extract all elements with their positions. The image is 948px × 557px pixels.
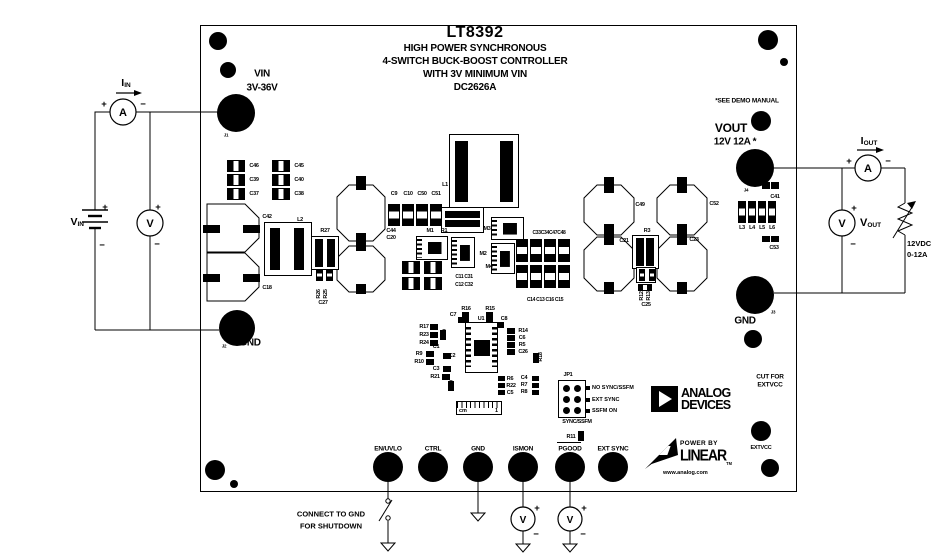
title-line: 4-SWITCH BUCK-BOOST CONTROLLER — [330, 55, 620, 68]
component-shape — [516, 239, 528, 262]
component-shape — [451, 237, 475, 268]
ammeter-letter: A — [119, 107, 127, 119]
silkscreen-c18: C18 — [262, 285, 271, 291]
voltmeter-letter: V — [567, 515, 574, 526]
load-rating-line2: 0-12A — [907, 250, 927, 259]
silkscreen-r16: R16 — [461, 306, 470, 312]
shutdown-switch — [386, 499, 390, 520]
vout-label: VOUT — [715, 121, 747, 135]
silkscreen-m2: M2 — [479, 251, 486, 257]
analog-url: www.analog.com — [663, 470, 708, 476]
cut-for-extvcc-note: CUT FOR — [756, 374, 784, 381]
component-shape — [445, 211, 480, 218]
component-shape — [639, 269, 645, 281]
component-shape — [416, 204, 428, 226]
component-shape — [578, 431, 584, 441]
turret-label-ctrl: CTRL — [425, 446, 442, 453]
component-shape — [738, 201, 746, 223]
jp1-option-marker — [586, 386, 590, 390]
component-shape — [498, 376, 505, 381]
component-shape — [677, 177, 687, 193]
turret-label-ismon: ISMON — [513, 446, 533, 453]
silkscreen-r15: R15 — [485, 306, 494, 312]
component-shape — [316, 269, 323, 281]
minus-sign: − — [140, 99, 146, 110]
silkscreen-c33c34c47c48: C33C34C47C48 — [532, 230, 565, 236]
cut-for-extvcc-note: EXTVCC — [757, 382, 782, 389]
analog-devices-logo-icon — [651, 386, 678, 412]
turret-gnd[interactable] — [463, 452, 493, 482]
component-shape — [507, 328, 515, 334]
silkscreen-j4: J4 — [744, 188, 748, 193]
scale-ruler: cm 1 — [456, 401, 502, 415]
silkscreen-c40: C40 — [294, 177, 303, 183]
plus-sign: + — [846, 156, 852, 167]
component-shape — [532, 376, 539, 381]
turret-label-gnd: GND — [471, 446, 485, 453]
component-shape — [646, 238, 654, 266]
component-shape — [416, 236, 448, 260]
component-shape — [203, 274, 220, 282]
component-shape — [771, 236, 779, 242]
jp1-option: SSFM ON — [592, 408, 617, 414]
silkscreen-c37: C37 — [249, 191, 258, 197]
silkscreen-c41: C41 — [770, 194, 779, 200]
mounting-hole — [744, 330, 762, 348]
silkscreen-r7: R7 — [521, 382, 527, 388]
output-voltmeter — [829, 210, 855, 236]
part-number: LT8392 — [330, 24, 620, 42]
silkscreen-m1: M1 — [426, 228, 433, 234]
load-arrow-head — [907, 201, 916, 209]
iout-arrow-head — [876, 147, 884, 153]
component-shape — [227, 160, 245, 172]
silkscreen-c6: C6 — [519, 335, 525, 341]
iin-arrow-head — [134, 90, 142, 96]
minus-sign: − — [154, 239, 160, 250]
silkscreen-r19: R19 — [449, 380, 455, 389]
silkscreen-c26: C26 — [518, 349, 527, 355]
component-shape — [762, 236, 770, 242]
silkscreen-c1: C1 — [433, 344, 439, 350]
component-shape — [507, 342, 515, 348]
component-shape — [532, 390, 539, 395]
linear-logo-text: LINEARTM — [680, 446, 732, 466]
silkscreen-l4: L4 — [749, 225, 755, 231]
silkscreen-r10: R10 — [414, 359, 423, 365]
silkscreen-c50: C50 — [417, 191, 426, 197]
silkscreen-r24: R24 — [419, 340, 428, 346]
mounting-hole — [761, 459, 779, 477]
jp1-label: JP1 — [564, 372, 573, 378]
voltmeter-letter: V — [520, 515, 527, 526]
silkscreen-c11-c31: C11 C31 — [455, 274, 472, 280]
component-shape — [455, 141, 468, 202]
minus-sign: − — [533, 529, 539, 540]
silkscreen-r26: R26 — [316, 289, 322, 298]
silkscreen-u1: U1 — [478, 316, 484, 322]
turret-en-uvlo[interactable] — [373, 452, 403, 482]
component-shape — [758, 201, 766, 223]
component-shape — [272, 174, 290, 186]
load-rating-line1: 12VDC — [907, 239, 931, 248]
component-shape — [402, 261, 420, 274]
component-shape — [677, 229, 687, 245]
silkscreen-c14-c13-c16-c15: C14 C13 C16 C15 — [527, 297, 563, 303]
component-shape — [677, 282, 687, 294]
silkscreen-c23: C23 — [689, 237, 698, 243]
component-shape — [498, 390, 505, 395]
turret-pgood[interactable] — [555, 452, 585, 482]
output-ammeter — [855, 155, 881, 181]
vout-rating: 12V 12A * — [714, 137, 757, 148]
silkscreen-r17: R17 — [419, 324, 428, 330]
silkscreen-r5: R5 — [519, 342, 525, 348]
plus-sign: + — [534, 503, 540, 514]
component-shape — [445, 220, 480, 227]
silkscreen-c46: C46 — [249, 163, 258, 169]
component-shape — [243, 225, 260, 233]
plus-sign: + — [581, 503, 587, 514]
iout-label: IOUT — [861, 135, 878, 147]
turret-ctrl[interactable] — [418, 452, 448, 482]
j3-gnd-pad[interactable] — [736, 276, 774, 314]
silkscreen-r1: R1 — [441, 228, 447, 234]
mounting-hole — [780, 58, 788, 66]
silkscreen-l2: L2 — [297, 217, 303, 223]
jp1-option: NO SYNC/SSFM — [592, 385, 634, 391]
silkscreen-c12-c32: C12 C32 — [455, 282, 473, 288]
battery-symbol — [82, 210, 108, 228]
plus-sign: + — [155, 202, 161, 213]
component-shape — [443, 366, 451, 372]
silkscreen-r8: R8 — [521, 389, 527, 395]
ammeter-letter: A — [864, 163, 872, 175]
component-shape — [636, 238, 644, 266]
mounting-hole — [758, 30, 778, 50]
extvcc-pad[interactable] — [751, 421, 771, 441]
component-shape — [227, 188, 245, 200]
jp1-option: EXT SYNC — [592, 397, 620, 403]
component-shape — [203, 225, 220, 233]
component-shape — [604, 229, 614, 245]
vout-meter-label: VOUT — [860, 217, 881, 229]
component-shape — [498, 383, 505, 388]
voltmeter-letter: V — [838, 218, 846, 230]
silkscreen-j3: J3 — [771, 310, 775, 315]
silkscreen-r25: R25 — [323, 289, 329, 298]
silkscreen-r20: R20 — [442, 329, 448, 338]
component-shape — [272, 188, 290, 200]
component-shape — [402, 277, 420, 290]
silkscreen-c38: C38 — [294, 191, 303, 197]
component-shape — [272, 160, 290, 172]
j2-gnd-pad[interactable] — [219, 310, 255, 346]
silkscreen-c44: C44 — [386, 228, 395, 234]
silkscreen-c53: C53 — [769, 245, 778, 251]
minus-sign: − — [99, 240, 105, 251]
component-shape — [430, 324, 438, 330]
jp1-caption: SYNC/SSFM — [562, 419, 591, 425]
ruler-unit: cm — [459, 408, 467, 414]
component-shape — [356, 233, 366, 251]
silkscreen-r6: R6 — [507, 376, 513, 382]
j1-vin-pad[interactable] — [217, 94, 255, 132]
title-line: DC2626A — [330, 81, 620, 94]
silkscreen-r9: R9 — [416, 351, 422, 357]
iin-label: IIN — [121, 77, 130, 89]
ismon-voltmeter — [511, 507, 535, 531]
component-shape — [356, 284, 366, 294]
see-demo-manual-note: *SEE DEMO MANUAL — [715, 98, 779, 105]
component-shape — [491, 243, 515, 274]
component-shape — [356, 176, 366, 190]
mounting-hole — [751, 111, 771, 131]
silkscreen-r18: R18 — [538, 352, 544, 361]
component-shape — [270, 228, 280, 270]
component-shape — [424, 261, 442, 274]
silkscreen-r3: R3 — [644, 228, 650, 234]
shutdown-note-line2: FOR SHUTDOWN — [300, 522, 362, 531]
mounting-hole — [209, 32, 227, 50]
component-shape — [465, 322, 498, 373]
title-line: WITH 3V MINIMUM VIN — [330, 68, 620, 81]
component-shape — [604, 177, 614, 193]
component-shape — [327, 239, 335, 267]
voltmeter-letter: V — [146, 218, 154, 230]
silkscreen-r14: R14 — [518, 328, 527, 334]
silkscreen-r23: R23 — [419, 332, 428, 338]
silkscreen-l5: L5 — [759, 225, 765, 231]
component-shape — [544, 239, 556, 262]
silkscreen-c20: C20 — [386, 235, 395, 241]
component-shape — [748, 201, 756, 223]
analog-devices-logo-text: ANALOG DEVICES — [681, 387, 730, 411]
vin-source-label: VIN — [70, 216, 84, 228]
title-line: HIGH POWER SYNCHRONOUS — [330, 42, 620, 55]
turret-label-pgood: PGOOD — [558, 446, 581, 453]
shutdown-note-line1: CONNECT TO GND — [297, 510, 365, 519]
j4-vout-pad[interactable] — [736, 149, 774, 187]
minus-sign: − — [580, 529, 586, 540]
turret-label-ext-sync: EXT SYNC — [598, 446, 629, 453]
extvcc-pad-label: EXTVCC — [750, 445, 771, 451]
silkscreen-c45: C45 — [294, 163, 303, 169]
silkscreen-c9: C9 — [391, 191, 397, 197]
component-shape — [500, 141, 513, 202]
plus-sign: + — [851, 203, 857, 214]
mounting-hole — [205, 460, 225, 480]
silkscreen-l6: L6 — [769, 225, 775, 231]
plus-sign: + — [102, 202, 108, 213]
component-shape — [516, 265, 528, 288]
component-shape — [507, 349, 515, 355]
silkscreen-r21: R21 — [430, 374, 439, 380]
component-shape — [532, 383, 539, 388]
turret-ext-sync[interactable] — [598, 452, 628, 482]
component-shape — [227, 174, 245, 186]
lt8392-demo-board-diagram: A V A V V V + − + − + − + − + − + − + − … — [0, 0, 948, 557]
vin-label: VIN — [254, 69, 270, 80]
turret-label-en-uvlo: EN/UVLO — [374, 446, 402, 453]
silkscreen-c21: C21 — [619, 238, 628, 244]
component-shape — [558, 265, 570, 288]
silkscreen-l1: L1 — [442, 182, 448, 188]
minus-sign: − — [850, 239, 856, 250]
mounting-hole — [220, 62, 236, 78]
component-shape — [243, 274, 260, 282]
silkscreen-c8: C8 — [501, 316, 507, 322]
component-shape — [402, 204, 414, 226]
component-shape — [326, 269, 333, 281]
component-shape — [491, 217, 524, 240]
silkscreen-r22: R22 — [506, 383, 515, 389]
component-shape — [315, 239, 323, 267]
adi-word-devices: DEVICES — [681, 399, 730, 411]
component-shape — [426, 351, 434, 357]
component-shape — [604, 282, 614, 294]
silkscreen-c51: C51 — [431, 191, 440, 197]
silkscreen-c49: C49 — [635, 202, 644, 208]
silkscreen-c25: C25 — [641, 302, 650, 308]
jp1-option-marker — [586, 409, 590, 413]
plus-sign: + — [101, 99, 107, 110]
silkscreen-r13: R13 — [646, 291, 652, 300]
title-block: LT8392 HIGH POWER SYNCHRONOUS 4-SWITCH B… — [330, 24, 620, 94]
silkscreen-c52: C52 — [709, 201, 718, 207]
jp1-jumper-header[interactable] — [558, 380, 586, 418]
silkscreen-l3: L3 — [739, 225, 745, 231]
mounting-hole — [230, 480, 238, 488]
minus-sign: − — [885, 156, 891, 167]
vin-range: 3V-36V — [246, 83, 277, 94]
component-shape — [558, 239, 570, 262]
component-shape — [544, 265, 556, 288]
component-shape — [442, 374, 450, 380]
component-shape — [557, 442, 581, 443]
ground-symbols — [381, 513, 577, 552]
component-shape — [507, 335, 515, 341]
component-shape — [768, 201, 776, 223]
silkscreen-c42: C42 — [262, 214, 271, 220]
silkscreen-c27: C27 — [318, 300, 327, 306]
component-shape — [771, 182, 779, 189]
silkscreen-c7: C7 — [450, 312, 456, 318]
silkscreen-c10: C10 — [403, 191, 412, 197]
silkscreen-r12: R12 — [639, 291, 645, 300]
component-shape — [430, 332, 438, 338]
gnd-out-label: GND — [734, 316, 755, 327]
silkscreen-c5: C5 — [507, 390, 513, 396]
silkscreen-m4: M4 — [485, 264, 492, 270]
silkscreen-c39: C39 — [249, 177, 258, 183]
silkscreen-c2: C2 — [449, 353, 455, 359]
ruler-mark: 1 — [495, 408, 498, 414]
silkscreen-r27: R27 — [320, 228, 329, 234]
silkscreen-m3: M3 — [483, 226, 490, 232]
component-shape — [426, 359, 434, 365]
silkscreen-r11: R11 — [567, 434, 576, 440]
input-voltmeter — [137, 210, 163, 236]
silkscreen-c3: C3 — [433, 366, 439, 372]
silkscreen-c4: C4 — [521, 375, 527, 381]
component-shape — [649, 269, 655, 281]
jp1-option-marker — [586, 398, 590, 402]
silkscreen-j1: J1 — [224, 133, 228, 138]
component-shape — [638, 284, 652, 291]
component-shape — [388, 204, 400, 226]
silkscreen-j2: J2 — [222, 344, 226, 349]
turret-ismon[interactable] — [508, 452, 538, 482]
component-shape — [530, 239, 542, 262]
component-shape — [424, 277, 442, 290]
component-shape — [530, 265, 542, 288]
input-ammeter — [110, 99, 136, 125]
pgood-voltmeter — [558, 507, 582, 531]
component-shape — [294, 228, 304, 270]
